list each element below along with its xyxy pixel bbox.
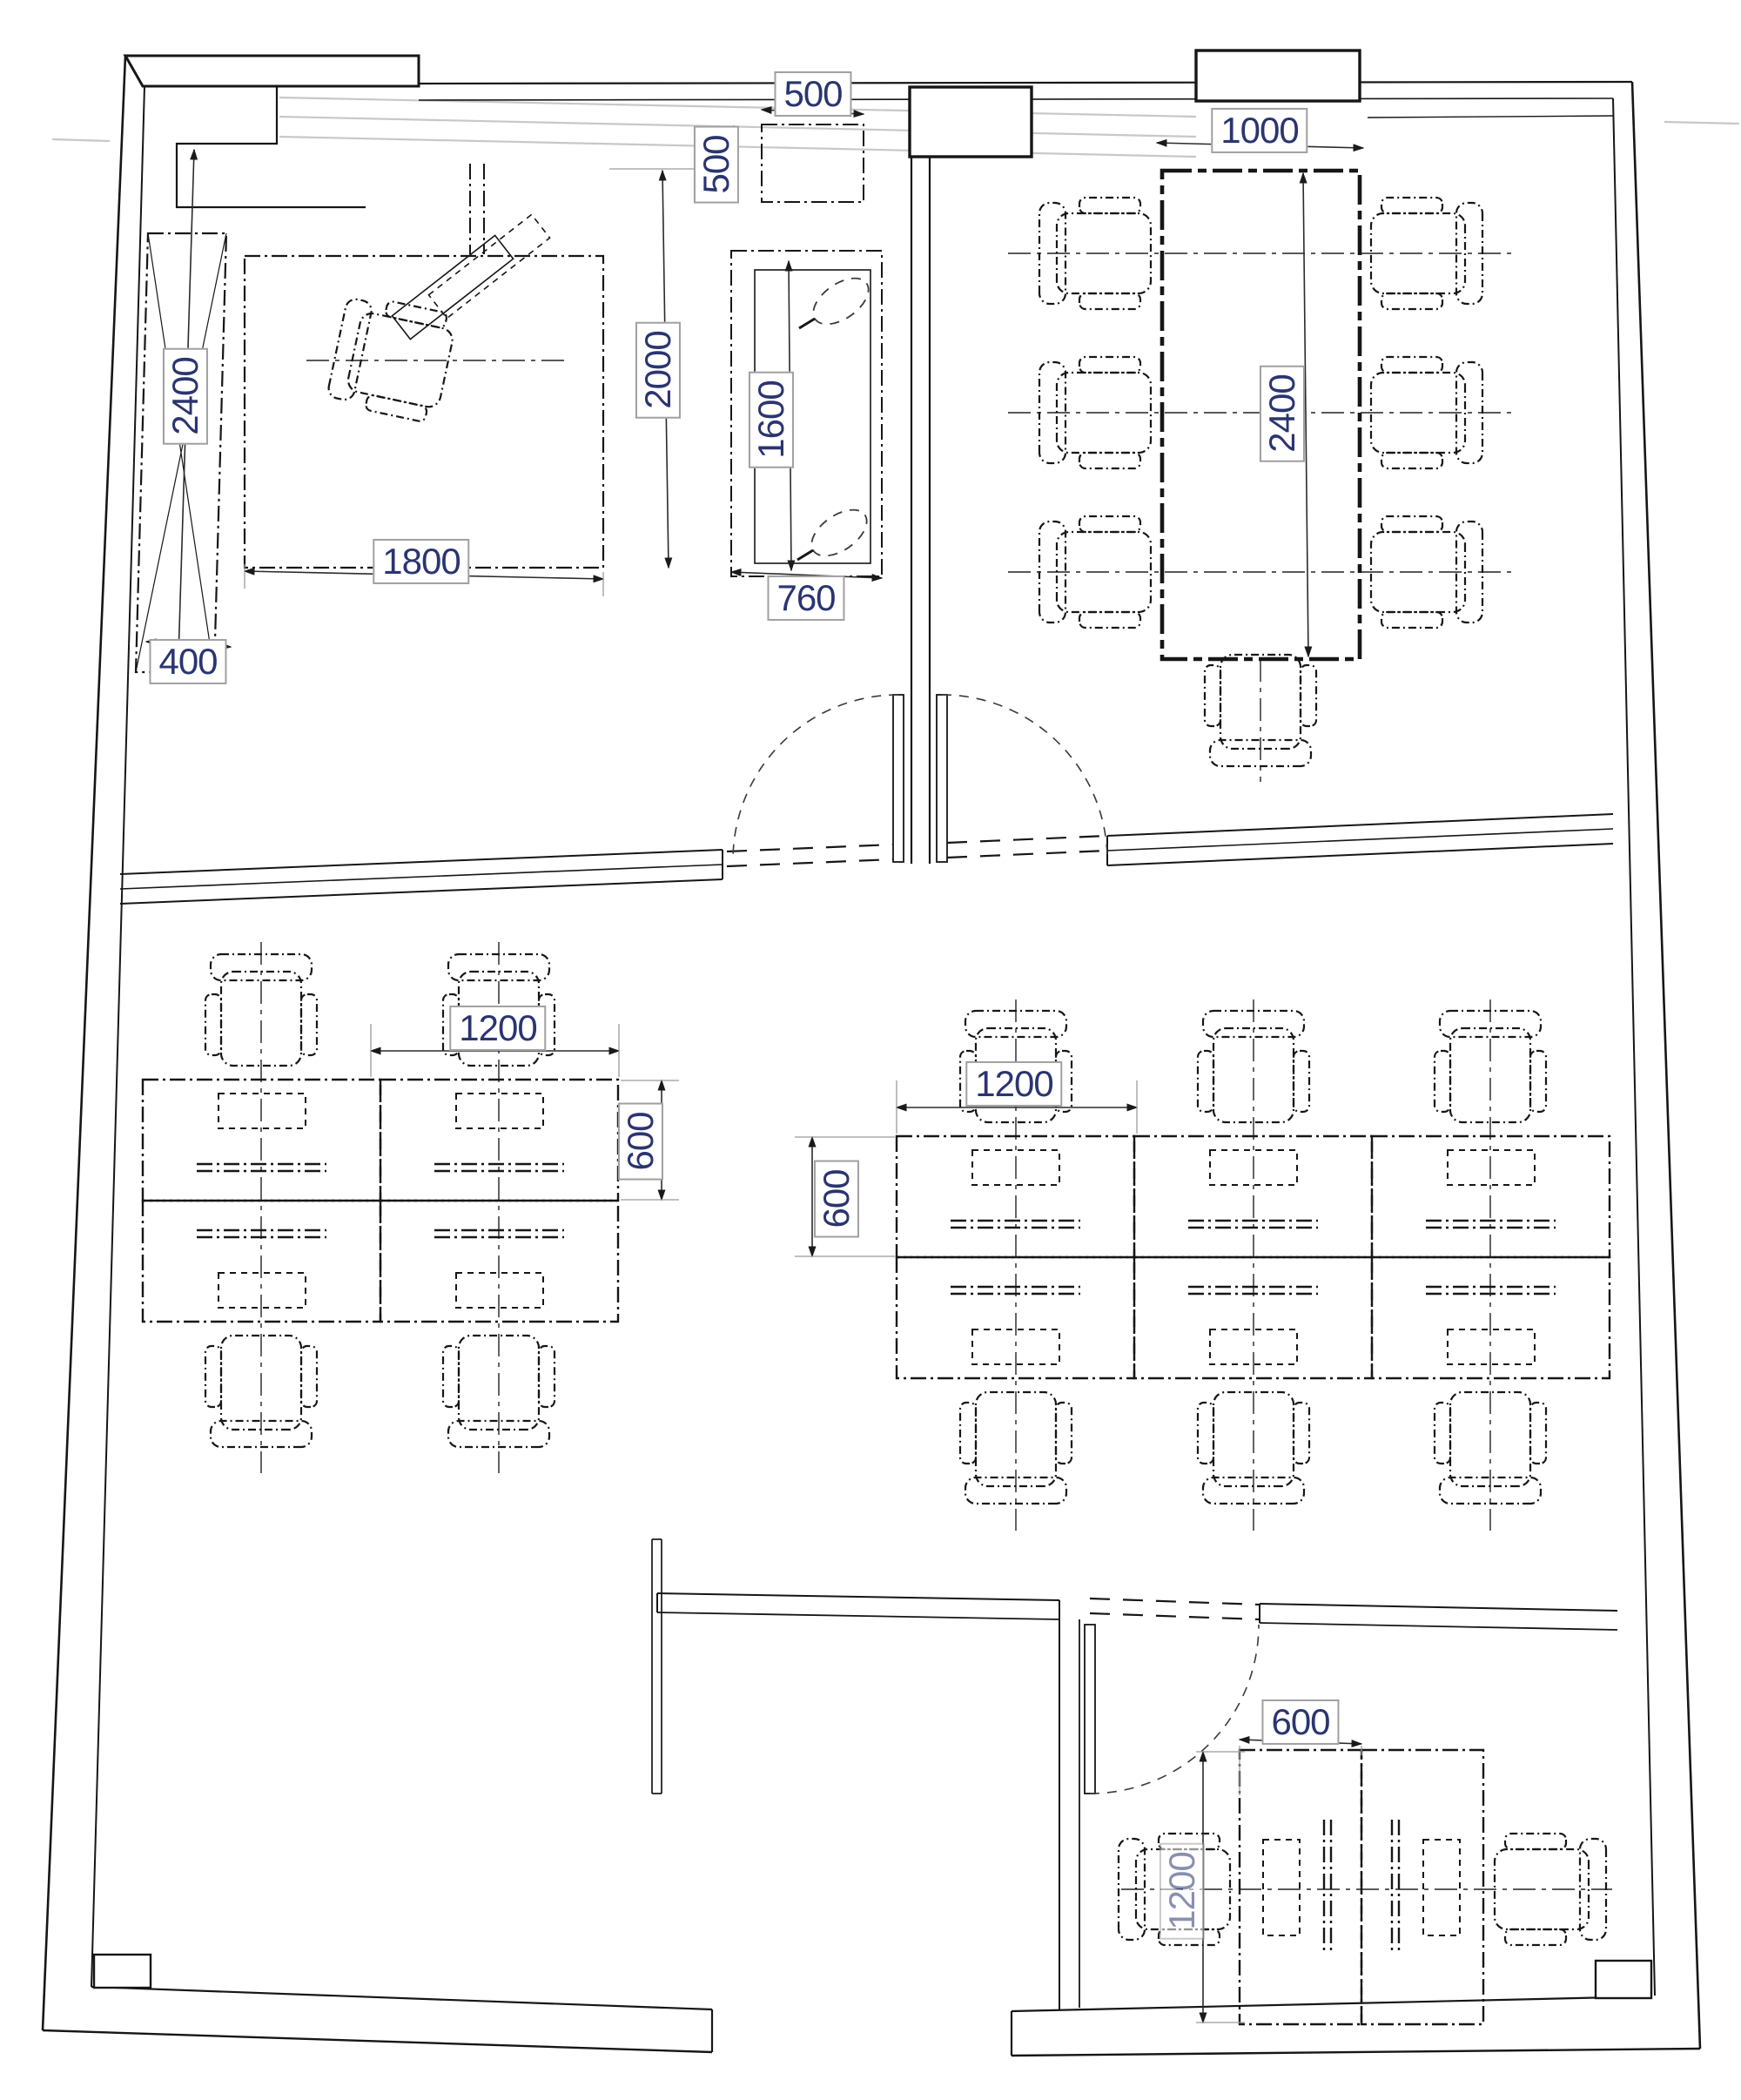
meeting-room (1008, 171, 1515, 782)
door-left (733, 695, 904, 862)
chair (1198, 1011, 1309, 1122)
chair (326, 293, 458, 425)
dim-label-wardrobe-length: 2400 (163, 347, 208, 444)
door-swing-arc (733, 695, 898, 860)
chair (1371, 198, 1482, 309)
door-swing-arc (1090, 1625, 1259, 1794)
dim-label-exec-desk-width: 1800 (373, 539, 469, 584)
dim-label-exec-room-depth: 2000 (635, 321, 681, 418)
chair (1435, 1011, 1546, 1122)
column-top-center (910, 87, 1032, 157)
dim-label-cabinet-width: 500 (774, 71, 851, 117)
door-leaf (1085, 1625, 1095, 1794)
dim-label-right-cluster-desk-depth: 600 (814, 1160, 859, 1237)
small-office-walls (652, 1539, 1617, 2009)
column-bottom-right (1596, 1961, 1651, 1998)
dim-label-small-office-desk-length: 1200 (1160, 1842, 1205, 1939)
exterior-walls (43, 50, 1700, 2056)
dim-label-conference-table-length: 2400 (1260, 365, 1305, 461)
curtain-wall-lines (52, 98, 1739, 157)
plant (803, 501, 875, 565)
desk (1240, 1750, 1361, 2024)
dim-label-left-cluster-desk-width: 1200 (449, 1006, 546, 1051)
interior-divider-wall (120, 157, 1613, 904)
floor-plan-drawing (0, 0, 1741, 2100)
dim-label-sideboard-width: 760 (767, 575, 844, 621)
chair (1495, 1834, 1606, 1945)
column-top-right (1196, 50, 1360, 101)
corner-monitor (392, 235, 513, 339)
dim-label-sideboard-length: 1600 (749, 371, 794, 468)
dim-label-cabinet-depth: 500 (694, 125, 739, 203)
executive-desk (245, 256, 603, 568)
sideboard-area (731, 125, 882, 576)
dim-label-small-office-desk-width: 600 (1261, 1700, 1339, 1745)
left-desk-cluster (143, 942, 618, 1473)
door-leaf (937, 695, 947, 862)
door-swing-arc (942, 695, 1107, 860)
desk (1361, 1750, 1483, 2024)
plant (805, 269, 877, 333)
dim-label-right-cluster-desk-width: 1200 (965, 1061, 1062, 1107)
floor-plan-page: 2400 1800 400 2000 500 500 1600 760 1000… (0, 0, 1741, 2100)
small-office-door (1085, 1625, 1259, 1794)
dim-label-left-cluster-desk-depth: 600 (618, 1102, 663, 1180)
column-bottom-left (94, 1955, 151, 1988)
chair (1371, 516, 1482, 628)
door-leaf (893, 695, 904, 862)
chair (1371, 357, 1482, 468)
dim-label-wardrobe-depth: 400 (149, 639, 226, 684)
dim-label-conference-table-width: 1000 (1211, 108, 1307, 153)
cabinet-500 (762, 125, 864, 202)
